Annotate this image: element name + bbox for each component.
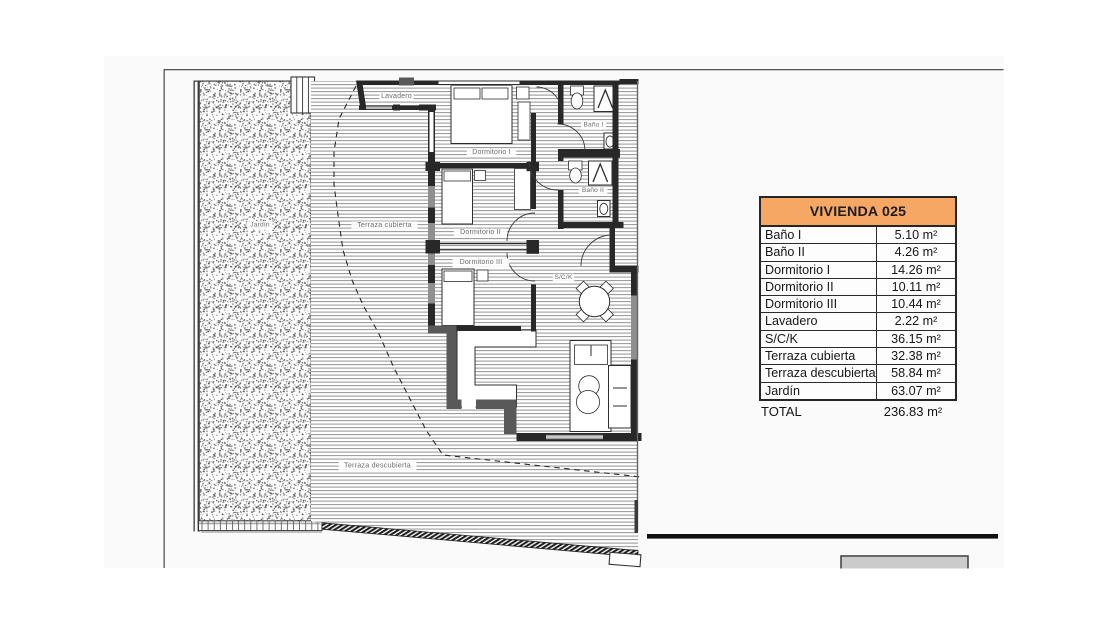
- svg-text:Baño I: Baño I: [584, 122, 604, 129]
- svg-text:Dormitorio II: Dormitorio II: [460, 229, 501, 236]
- svg-text:Jardín: Jardín: [250, 222, 270, 229]
- svg-text:Terraza descubierta: Terraza descubierta: [344, 461, 411, 470]
- svg-text:Baño II: Baño II: [582, 187, 604, 194]
- svg-text:S/C/K: S/C/K: [555, 274, 573, 281]
- svg-text:Dormitorio I: Dormitorio I: [472, 149, 511, 156]
- svg-text:Terraza cubierta: Terraza cubierta: [357, 220, 412, 229]
- svg-text:Dormitorio III: Dormitorio III: [460, 259, 503, 266]
- svg-text:Lavadero: Lavadero: [381, 93, 412, 100]
